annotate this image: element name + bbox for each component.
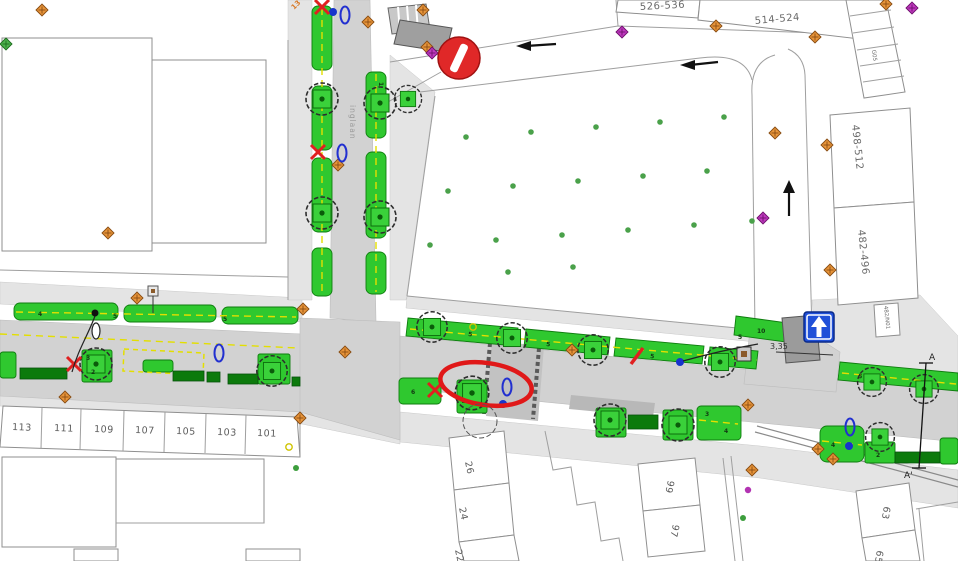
strip-count-label: 2 [91, 369, 95, 376]
strip-count-label: 10 [757, 328, 765, 335]
house-number: 101 [257, 428, 277, 440]
planting-dot [493, 237, 499, 243]
planting-dot [570, 264, 576, 270]
survey-marker-icon [824, 264, 836, 276]
planting-dot [593, 124, 599, 130]
house-number: 109 [94, 424, 114, 436]
building-block [152, 60, 266, 243]
building-block [449, 431, 509, 490]
planting-dot [505, 269, 511, 275]
planting-dot [575, 178, 581, 184]
section-marker-label: A [929, 353, 936, 363]
direction-arrow-icon [783, 180, 795, 216]
strip-count-label: 1 [377, 82, 384, 86]
building-block [834, 202, 918, 305]
reference-dot [92, 310, 99, 317]
house-number: 107 [135, 425, 155, 437]
planting-dot [640, 173, 646, 179]
planting-dot [691, 222, 697, 228]
strip-count-label: 3 [86, 355, 90, 362]
planting-dot [445, 188, 451, 194]
street-plan-viewport[interactable]: 526-536 514-524 G05 498-512 482-496 482/… [0, 0, 958, 561]
building-block [2, 38, 152, 251]
street-name-label: inglaan [348, 105, 357, 140]
boundary-dot [740, 515, 746, 521]
house-number: 22 [452, 548, 465, 561]
direction-arrow-icon [516, 41, 556, 51]
planting-dot [657, 119, 663, 125]
strip-count-label: 5 [858, 373, 863, 380]
strip-count-label: 6 [411, 389, 415, 396]
planting-dot [625, 227, 631, 233]
utility-box [737, 347, 751, 361]
house-number: 113 [12, 422, 32, 434]
strip-count-label: 5 [650, 353, 655, 360]
boundary-dot [293, 465, 299, 471]
strip-count-label: 4 [724, 428, 728, 435]
lamp-outline [92, 323, 100, 339]
strip-count-label: 2 [876, 452, 880, 459]
dimension-label: 3,35 [770, 342, 788, 351]
house-number: 63 [879, 505, 892, 520]
strip-count-label: 4 [831, 442, 835, 449]
planting-dot [704, 168, 710, 174]
survey-marker-purple-icon [616, 26, 628, 38]
house-number: 103 [217, 427, 237, 439]
lamppost-dot [845, 442, 853, 450]
survey-marker-icon [769, 127, 781, 139]
strip-count-label: 3 [705, 411, 709, 418]
house-number: 105 [176, 426, 196, 438]
building-block [830, 108, 914, 208]
planting-dot [463, 134, 469, 140]
strip-count-label: 5 [223, 316, 227, 323]
planting-dot [749, 218, 755, 224]
direction-arrow-icon [680, 60, 718, 70]
planting-dot [427, 242, 433, 248]
street-plan-drawing: 526-536 514-524 G05 498-512 482-496 482/… [0, 0, 958, 561]
survey-marker-icon [36, 4, 48, 16]
survey-marker-purple-icon [757, 212, 769, 224]
survey-marker-purple-icon [906, 2, 918, 14]
strip-count-label: 4 [38, 311, 42, 318]
one-way-sign-icon [804, 312, 834, 342]
planting-dot [721, 114, 727, 120]
strip-count-label: 5 [738, 334, 742, 341]
planting-dot [510, 183, 516, 189]
strip-count-label: 5 [468, 331, 473, 338]
planting-dot [528, 129, 534, 135]
no-entry-sign-icon [438, 37, 480, 79]
planting-dot [559, 232, 565, 238]
strip-count-label: 5 [113, 313, 117, 320]
strip-count-label: 5 [546, 341, 551, 348]
house-number: 111 [54, 423, 74, 435]
lamppost-dot [676, 358, 684, 366]
lamppost-dot [329, 8, 337, 16]
section-marker-label: A' [904, 471, 913, 481]
boundary-dot [745, 487, 751, 493]
